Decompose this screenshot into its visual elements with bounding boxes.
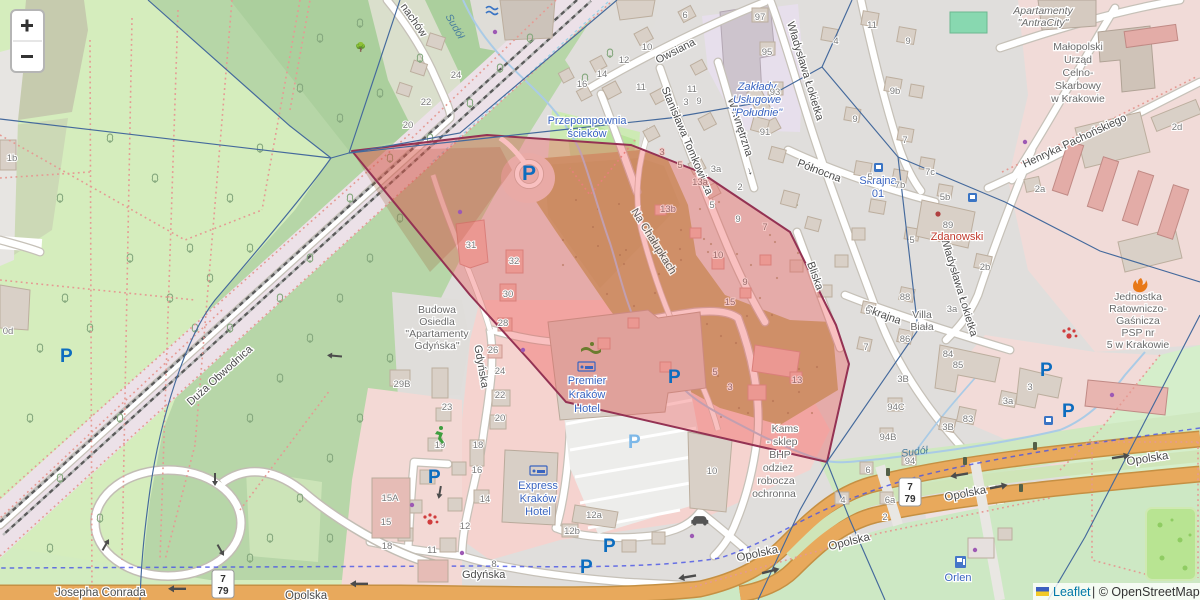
svg-text:6a: 6a (885, 495, 896, 506)
svg-text:Celno-: Celno- (1063, 67, 1094, 79)
svg-text:14: 14 (597, 69, 608, 80)
svg-text:12: 12 (460, 521, 471, 532)
svg-text:4: 4 (840, 495, 845, 506)
svg-text:8: 8 (491, 559, 496, 570)
svg-text:Gaśnicza: Gaśnicza (1116, 315, 1160, 327)
svg-text:28: 28 (498, 318, 509, 329)
svg-text:P: P (522, 162, 536, 185)
svg-text:88: 88 (900, 292, 911, 303)
svg-text:5b: 5b (940, 192, 951, 203)
svg-text:3: 3 (683, 97, 688, 108)
svg-text:86: 86 (900, 334, 911, 345)
svg-text:11: 11 (867, 20, 877, 31)
svg-text:P: P (580, 557, 593, 578)
svg-text:2a: 2a (1035, 184, 1046, 195)
svg-text:29B: 29B (394, 379, 411, 390)
svg-text:Kams: Kams (772, 423, 799, 435)
svg-text:Skarbowy: Skarbowy (1055, 80, 1102, 92)
svg-text:15: 15 (725, 297, 736, 308)
svg-text:24: 24 (495, 366, 506, 377)
svg-text:10: 10 (713, 250, 724, 261)
svg-text:24: 24 (451, 70, 462, 81)
svg-text:84: 84 (943, 349, 954, 360)
svg-text:7: 7 (863, 342, 868, 353)
svg-text:Jednostka: Jednostka (1114, 291, 1162, 303)
svg-text:16: 16 (577, 79, 588, 90)
svg-text:7: 7 (762, 222, 767, 233)
svg-text:20: 20 (495, 413, 506, 424)
svg-text:9: 9 (852, 114, 857, 125)
svg-text:P: P (628, 432, 641, 453)
svg-text:0d: 0d (3, 326, 14, 337)
svg-text:"AntraCity": "AntraCity" (1018, 17, 1070, 29)
svg-text:Gdyńska: Gdyńska (462, 569, 506, 581)
svg-text:12: 12 (619, 55, 630, 66)
svg-text:3: 3 (659, 147, 664, 158)
svg-text:1b: 1b (7, 153, 18, 164)
svg-text:Villa: Villa (912, 309, 932, 321)
svg-text:5: 5 (867, 172, 872, 183)
svg-text:2: 2 (737, 182, 742, 193)
svg-text:2b: 2b (980, 262, 991, 273)
svg-text:P: P (603, 536, 616, 557)
svg-text:26: 26 (488, 345, 499, 356)
svg-text:3B: 3B (897, 374, 909, 385)
svg-text:79: 79 (904, 494, 916, 505)
svg-text:7b: 7b (895, 180, 906, 191)
svg-text:Przepompownia: Przepompownia (548, 115, 628, 127)
svg-text:3: 3 (727, 382, 732, 393)
svg-text:97: 97 (755, 12, 766, 23)
svg-text:Apartamenty: Apartamenty (1012, 5, 1073, 17)
svg-text:13a: 13a (692, 177, 709, 188)
svg-text:Urząd: Urząd (1064, 54, 1092, 66)
svg-text:BHP: BHP (769, 449, 791, 461)
svg-text:Biała: Biała (910, 321, 934, 333)
svg-text:3B: 3B (942, 422, 954, 433)
svg-text:4: 4 (833, 36, 838, 47)
svg-text:Leaflet: Leaflet (1053, 585, 1091, 599)
svg-text:10: 10 (707, 466, 718, 477)
svg-text:Osiedla: Osiedla (419, 316, 455, 328)
svg-text:16: 16 (472, 465, 483, 476)
svg-text:94C: 94C (887, 402, 905, 413)
svg-text:30: 30 (503, 289, 514, 300)
svg-text:7: 7 (902, 135, 907, 146)
svg-text:11: 11 (687, 84, 697, 95)
svg-text:Opolska: Opolska (285, 590, 328, 600)
svg-text:22: 22 (421, 97, 432, 108)
svg-text:94B: 94B (880, 432, 897, 443)
svg-text:20: 20 (403, 120, 414, 131)
svg-text:7: 7 (907, 482, 913, 493)
svg-text:PSP nr: PSP nr (1121, 327, 1155, 339)
svg-text:94: 94 (905, 456, 916, 467)
svg-text:18: 18 (382, 541, 393, 552)
svg-text:95: 95 (762, 47, 773, 58)
svg-text:w Krakowie: w Krakowie (1050, 93, 1105, 105)
svg-text:12b: 12b (564, 526, 580, 537)
svg-text:P: P (668, 367, 681, 388)
svg-text:5: 5 (709, 200, 714, 211)
svg-text:91: 91 (760, 127, 771, 138)
svg-text:3a: 3a (711, 164, 722, 175)
svg-text:85: 85 (953, 360, 964, 371)
svg-text:5 w Krakowie: 5 w Krakowie (1107, 339, 1170, 351)
svg-text:79: 79 (217, 586, 229, 597)
svg-text:5: 5 (909, 235, 914, 246)
svg-text:Premier: Premier (568, 375, 607, 387)
svg-text:P: P (1040, 360, 1053, 381)
svg-text:13b: 13b (660, 204, 676, 215)
svg-text:odziez: odziez (763, 462, 793, 474)
svg-text:14: 14 (480, 494, 491, 505)
svg-text:15: 15 (381, 517, 392, 528)
svg-text:2: 2 (882, 512, 887, 523)
svg-text:15A: 15A (382, 493, 400, 504)
svg-text:93: 93 (770, 87, 781, 98)
svg-text:Hotel: Hotel (525, 506, 551, 518)
svg-text:9b: 9b (890, 86, 901, 97)
svg-text:"Apartamenty: "Apartamenty (405, 328, 469, 340)
svg-text:6: 6 (682, 10, 687, 21)
svg-text:83: 83 (963, 414, 974, 425)
svg-text:9: 9 (696, 96, 701, 107)
svg-text:5: 5 (865, 306, 870, 317)
svg-text:Małopolski: Małopolski (1053, 41, 1103, 53)
svg-text:Josepha Conrada: Josepha Conrada (55, 587, 146, 599)
svg-text:3: 3 (1027, 382, 1032, 393)
svg-text:Budowa: Budowa (418, 304, 456, 316)
svg-text:31: 31 (466, 240, 477, 251)
svg-text:32: 32 (509, 256, 520, 267)
svg-text:- sklep: - sklep (767, 436, 798, 448)
svg-text:18: 18 (473, 440, 484, 451)
svg-text:Ratowniczo-: Ratowniczo- (1109, 303, 1167, 315)
svg-text:ścieków: ścieków (567, 128, 606, 140)
svg-text:11: 11 (636, 82, 646, 93)
svg-text:22: 22 (495, 390, 506, 401)
svg-text:6: 6 (865, 465, 870, 476)
svg-text:"Południe": "Południe" (732, 107, 784, 119)
svg-text:3a: 3a (1003, 396, 1014, 407)
svg-text:Hotel: Hotel (574, 403, 600, 415)
svg-text:Kraków: Kraków (569, 389, 606, 401)
svg-text:23: 23 (442, 402, 453, 413)
svg-text:11: 11 (427, 545, 437, 556)
svg-text:9: 9 (905, 36, 910, 47)
svg-text:P: P (1062, 401, 1075, 422)
svg-text:ochronna: ochronna (752, 488, 796, 500)
svg-text:13: 13 (792, 375, 803, 386)
svg-text:🌳: 🌳 (355, 41, 366, 52)
svg-text:5: 5 (677, 160, 682, 171)
svg-text:Kraków: Kraków (520, 493, 557, 505)
svg-text:2d: 2d (1172, 122, 1183, 133)
svg-text:12a: 12a (586, 510, 603, 521)
svg-text:89: 89 (943, 220, 954, 231)
svg-text:7: 7 (220, 574, 226, 585)
svg-text:Zdanowski: Zdanowski (931, 231, 984, 243)
svg-text:9: 9 (742, 277, 747, 288)
svg-text:5: 5 (712, 367, 717, 378)
svg-text:9: 9 (735, 214, 740, 225)
svg-text:P: P (60, 346, 73, 367)
svg-text:P: P (428, 467, 441, 488)
svg-text:Express: Express (518, 480, 558, 492)
svg-text:7c: 7c (925, 167, 935, 178)
svg-text:Orlen: Orlen (945, 572, 972, 584)
svg-text:Skrajna: Skrajna (859, 175, 897, 187)
svg-text:01: 01 (872, 188, 884, 200)
svg-text:Gdyńska": Gdyńska" (414, 340, 459, 352)
svg-text:robocza: robocza (757, 475, 795, 487)
svg-text:10: 10 (642, 42, 653, 53)
svg-text:| © OpenStreetMap: | © OpenStreetMap (1092, 585, 1200, 599)
svg-text:3a: 3a (947, 304, 958, 315)
